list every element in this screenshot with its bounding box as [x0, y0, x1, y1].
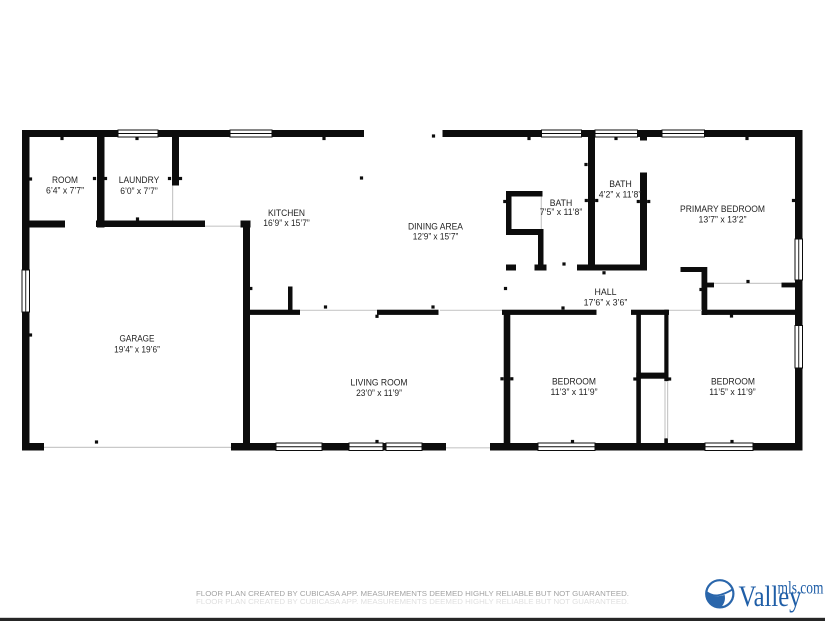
svg-text:LAUNDRY: LAUNDRY [119, 175, 160, 186]
svg-text:mls.com: mls.com [778, 579, 825, 598]
svg-text:6’4” x 7’7”: 6’4” x 7’7” [46, 186, 84, 197]
svg-text:FLOOR PLAN CREATED BY CUBICASA: FLOOR PLAN CREATED BY CUBICASA APP. MEAS… [196, 597, 629, 606]
svg-text:ROOM: ROOM [52, 175, 78, 186]
svg-text:6’0” x 7’7”: 6’0” x 7’7” [120, 186, 158, 197]
svg-text:17’6” x 3’6”: 17’6” x 3’6” [584, 297, 628, 308]
svg-text:19’4” x 19’6”: 19’4” x 19’6” [114, 345, 160, 356]
svg-text:13’7” x 13’2”: 13’7” x 13’2” [699, 215, 747, 226]
svg-text:BATH: BATH [609, 179, 632, 190]
svg-text:4’2” x 11’8”: 4’2” x 11’8” [599, 189, 642, 200]
svg-text:12’9” x 15’7”: 12’9” x 15’7” [413, 231, 459, 242]
svg-text:11’3” x 11’9”: 11’3” x 11’9” [551, 387, 598, 398]
svg-text:11’5” x 11’9”: 11’5” x 11’9” [709, 387, 755, 398]
svg-text:LIVING ROOM: LIVING ROOM [351, 377, 408, 388]
svg-text:16’9” x 15’7”: 16’9” x 15’7” [263, 218, 310, 229]
svg-text:GARAGE: GARAGE [120, 333, 155, 344]
svg-text:PRIMARY BEDROOM: PRIMARY BEDROOM [680, 204, 765, 215]
svg-text:7’5” x 11’8”: 7’5” x 11’8” [540, 207, 583, 218]
svg-text:23’0” x 11’9”: 23’0” x 11’9” [356, 388, 402, 399]
